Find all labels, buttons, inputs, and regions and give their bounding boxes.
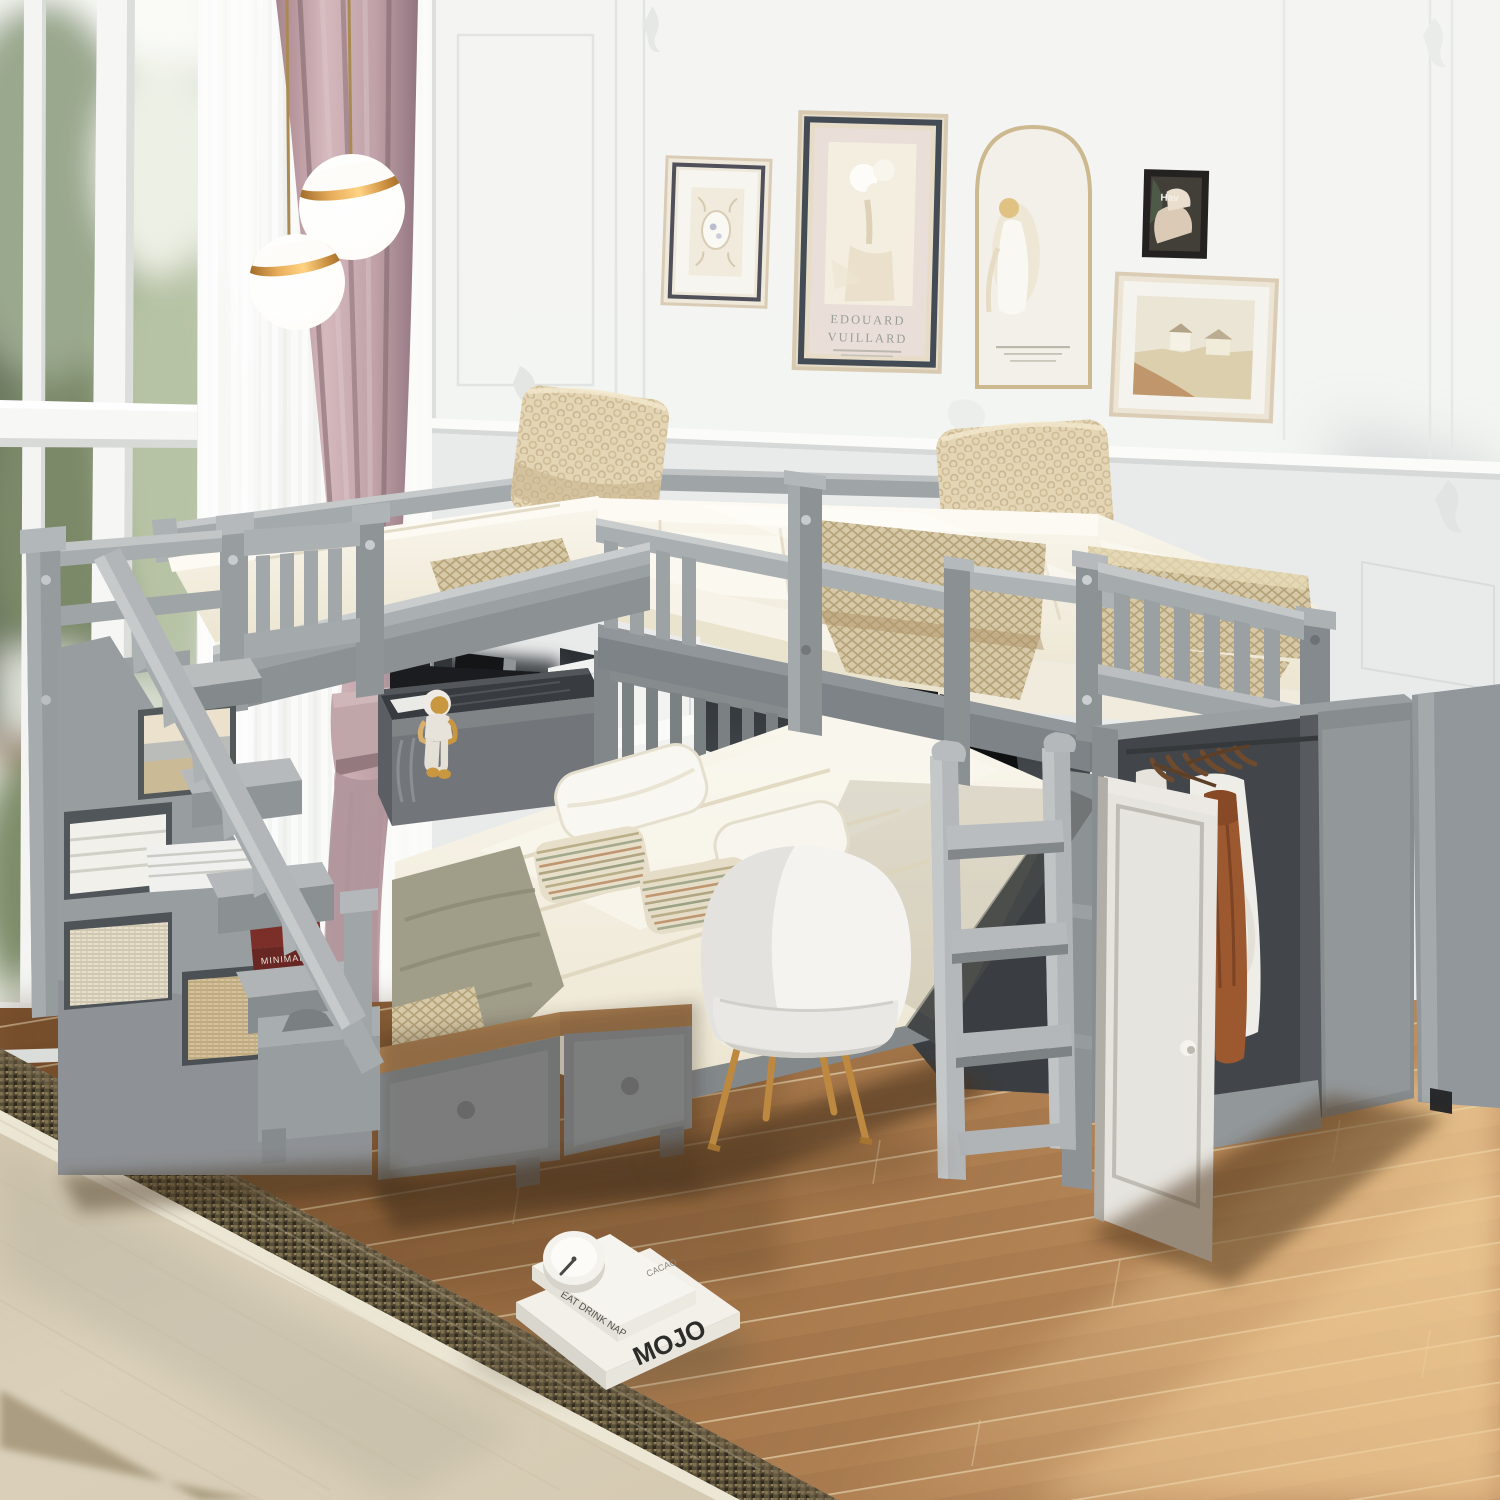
svg-text:Hav: Hav	[1160, 193, 1179, 204]
svg-text:VUILLARD: VUILLARD	[827, 330, 907, 346]
svg-text:EDOUARD: EDOUARD	[830, 312, 905, 328]
